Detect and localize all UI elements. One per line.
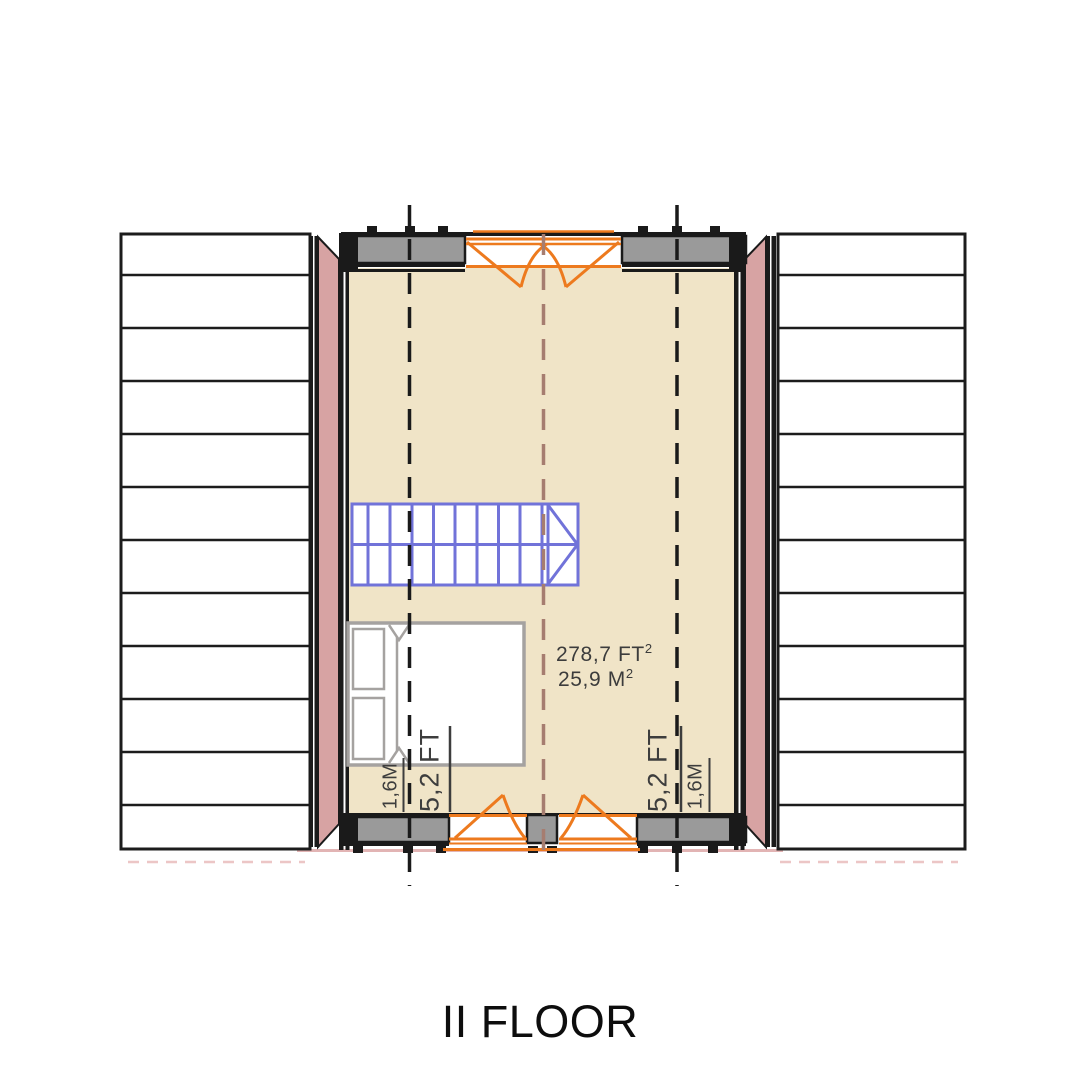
dimension-right-outer: 5,2 FT (643, 728, 674, 812)
dimension-left-outer: 5,2 FT (415, 728, 446, 812)
roof-right (778, 234, 965, 849)
bed-pillow-bottom (353, 698, 384, 759)
wall-corner-bottom-right (729, 813, 746, 846)
wall-corner-top-left (341, 232, 358, 272)
room-area-ft: 278,7 FT2 (556, 643, 653, 667)
wall-corner-bottom-left (341, 813, 358, 846)
floor-plan-drawing (0, 0, 1080, 1080)
side-wall-left (309, 233, 350, 850)
room-area-ft-value: 278,7 FT (556, 643, 645, 666)
side-wall-right (734, 233, 776, 850)
room-area-m-sup: 2 (626, 666, 634, 681)
dimension-right-inner: 1,6M (685, 763, 708, 809)
bed-pillow-top (353, 629, 384, 689)
roof-left (121, 234, 310, 849)
room-area-m: 25,9 M2 (558, 668, 634, 692)
wall-corner-top-right (729, 232, 746, 272)
room-area-m-value: 25,9 M (558, 668, 626, 691)
page-title: II FLOOR (0, 996, 1080, 1048)
floor-plan-page: 278,7 FT2 25,9 M2 1,6M 5,2 FT 5,2 FT 1,6… (0, 0, 1080, 1080)
room-area-ft-sup: 2 (645, 641, 653, 656)
dimension-left-inner: 1,6M (380, 763, 403, 809)
